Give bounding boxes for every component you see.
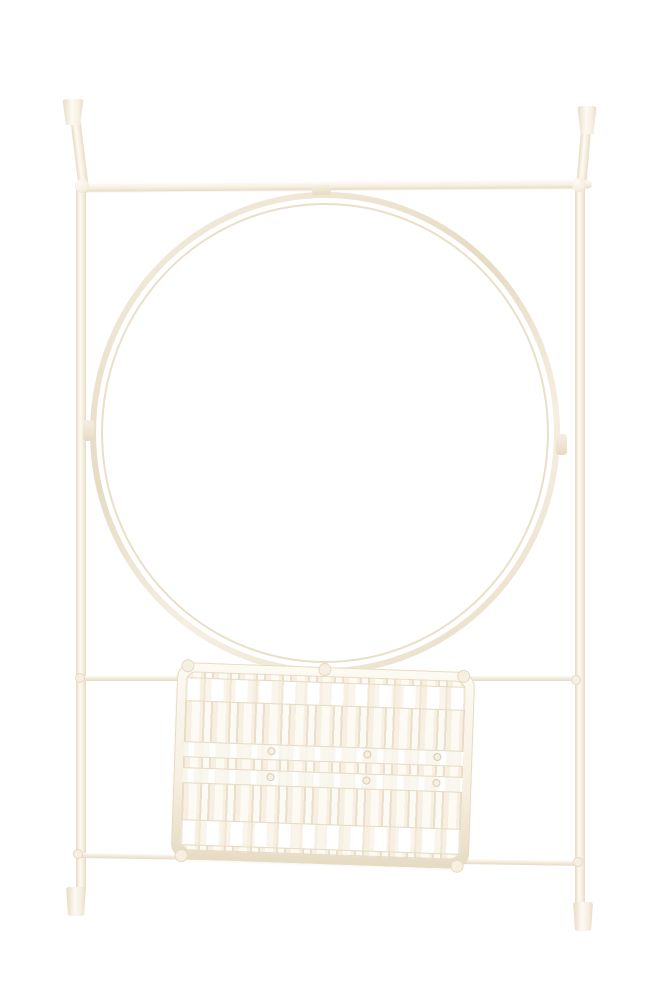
rail-post-joint bbox=[573, 857, 583, 867]
basket-weave-band-middle bbox=[183, 741, 463, 767]
basket-weave-band-middle bbox=[182, 767, 462, 793]
basket-rivet bbox=[266, 773, 274, 781]
basket-mounting-lug bbox=[450, 860, 463, 873]
basket-weave bbox=[180, 671, 466, 860]
left-foot-cap bbox=[66, 887, 86, 916]
right-post bbox=[575, 180, 585, 908]
hoop-right-clamp bbox=[556, 434, 567, 455]
circular-hoop bbox=[90, 192, 560, 674]
basket-mounting-lug bbox=[175, 849, 188, 862]
basket-rivet bbox=[363, 750, 371, 758]
top-crossbar bbox=[80, 180, 592, 192]
left-post bbox=[76, 180, 86, 892]
rail-post-joint bbox=[75, 673, 85, 683]
rail-post-joint bbox=[73, 849, 83, 859]
basket-rivet bbox=[362, 776, 370, 784]
product-photo-white-metal-rack bbox=[0, 0, 667, 1000]
rail-post-joint bbox=[571, 675, 581, 685]
hoop-left-clamp bbox=[83, 420, 94, 441]
hoop-top-clamp bbox=[312, 185, 331, 196]
right-crossbar-joint-knob bbox=[572, 178, 586, 192]
basket-rivet bbox=[432, 779, 440, 787]
basket-weave-band-top bbox=[185, 677, 466, 711]
basket-weave-band-bottom bbox=[180, 819, 461, 855]
left-crossbar-joint-knob bbox=[75, 179, 89, 193]
hoop-inner-ring-line bbox=[101, 203, 549, 663]
basket-rivet bbox=[267, 747, 275, 755]
basket-rivet bbox=[433, 753, 441, 761]
slatted-basket bbox=[171, 662, 476, 869]
right-foot-cap bbox=[573, 902, 593, 931]
